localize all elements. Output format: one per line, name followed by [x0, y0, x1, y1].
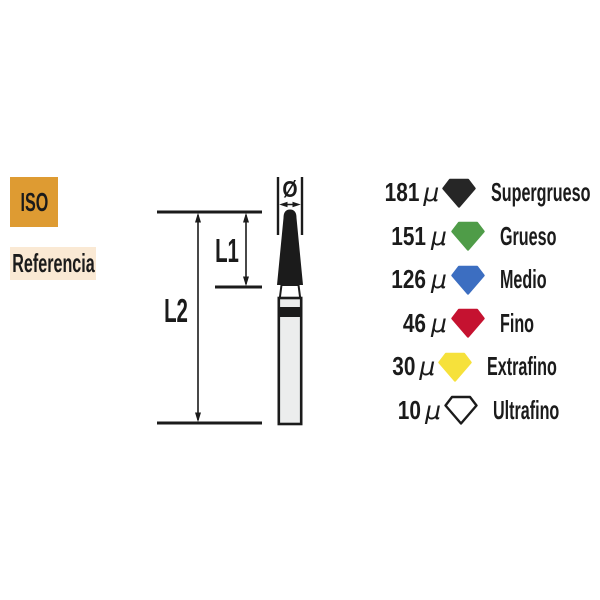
micron-unit-symbol: μ	[425, 396, 441, 425]
grit-size-value: 10	[385, 395, 421, 426]
bur-infographic: ISO Referencia L1 L2 Ø	[0, 0, 600, 600]
diameter-arrow	[279, 202, 301, 207]
diameter-symbol: Ø	[282, 177, 297, 203]
iso-badge: ISO	[10, 177, 58, 227]
grit-name-label: Medio	[500, 264, 547, 295]
diamond-white-icon	[444, 395, 478, 425]
grit-name-label: Extrafino	[487, 351, 557, 382]
l2-dimension-arrow	[195, 213, 201, 422]
l1-label: L1	[215, 232, 239, 269]
micron-unit-symbol: μ	[430, 222, 448, 251]
grit-name-label: Ultrafino	[493, 395, 559, 426]
l1-dimension-arrow	[243, 213, 249, 286]
diamond-green-icon	[451, 221, 485, 251]
grit-name-label: Supergrueso	[491, 177, 590, 208]
micron-unit-symbol: μ	[430, 309, 448, 338]
bur-color-band	[279, 307, 301, 317]
legend-row: 181 μ Supergrueso	[376, 171, 600, 215]
bur-dimension-diagram: L1 L2 Ø	[140, 160, 340, 450]
grit-name-label: Fino	[500, 308, 534, 339]
bur-head	[277, 210, 303, 286]
micron-unit-symbol: μ	[419, 352, 435, 381]
grit-size-value: 46	[386, 308, 426, 339]
diamond-yellow-icon	[438, 352, 472, 382]
referencia-badge: Referencia	[10, 247, 96, 280]
grit-name-label: Grueso	[500, 221, 556, 252]
diamond-black-icon	[442, 178, 476, 208]
iso-badge-label: ISO	[20, 187, 48, 218]
grit-size-value: 181	[385, 177, 420, 208]
l2-label: L2	[164, 292, 188, 329]
micron-unit-symbol: μ	[430, 265, 448, 294]
bur-neck	[280, 285, 300, 298]
referencia-badge-label: Referencia	[12, 248, 94, 279]
diamond-blue-icon	[451, 265, 485, 295]
legend-row: 10 μ Ultrafino	[376, 389, 600, 433]
micron-unit-symbol: μ	[423, 178, 439, 207]
legend-row: 126 μ Medio	[376, 258, 600, 302]
grit-legend: 181 μ Supergrueso 151 μ Grueso 126 μ Med…	[376, 171, 600, 432]
legend-row: 46 μ Fino	[376, 302, 600, 346]
legend-row: 151 μ Grueso	[376, 215, 600, 259]
diamond-red-icon	[451, 308, 485, 338]
legend-row: 30 μ Extrafino	[376, 345, 600, 389]
grit-size-value: 126	[386, 264, 426, 295]
grit-size-value: 30	[384, 351, 416, 382]
grit-size-value: 151	[386, 221, 426, 252]
